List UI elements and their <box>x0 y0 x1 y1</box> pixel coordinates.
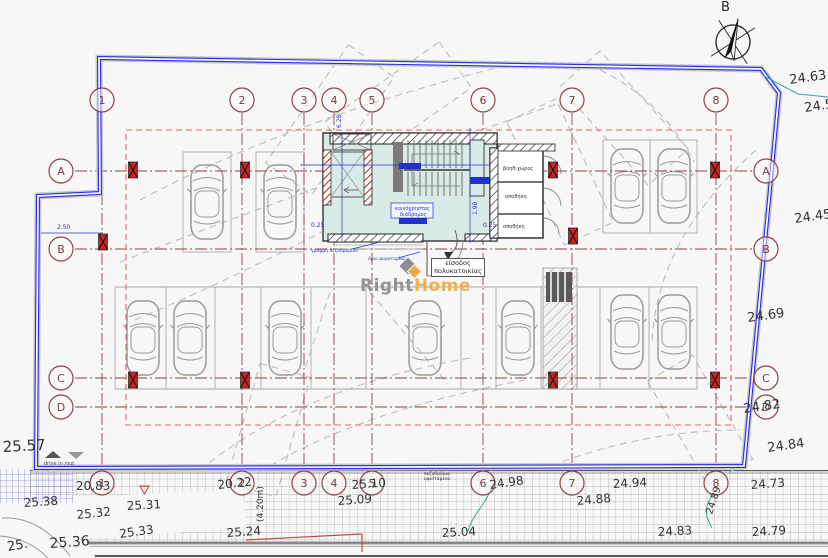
column-marker <box>129 372 138 388</box>
grid-bubble-label-C: C <box>762 372 770 385</box>
room-label: αποθήκη <box>505 193 527 200</box>
column-marker <box>711 162 720 178</box>
spot-elevation: 24.94 <box>612 475 647 491</box>
spot-elevation: 25.24 <box>226 524 261 540</box>
entrance-label-box: είσοδος πολυκατοικίας <box>431 258 485 277</box>
grid-bubble-label-D: D <box>57 401 65 414</box>
lift-wall <box>364 150 372 205</box>
column-marker <box>99 234 108 250</box>
spot-elevation: 25.09 <box>337 492 372 508</box>
column-marker <box>549 372 558 388</box>
annotation-tag: γραμμή πεζοδρομίου <box>311 247 358 254</box>
grid-bubble-label-4: 4 <box>331 94 338 107</box>
spot-elevation: 24.79 <box>751 523 786 539</box>
blue-tag <box>399 218 427 224</box>
column-marker <box>711 372 720 388</box>
column-marker <box>129 162 138 178</box>
grid-bubble-label-C: C <box>57 372 65 385</box>
sidewalk-note: υφιστάμενο <box>424 475 450 482</box>
blue-tag <box>399 163 421 169</box>
spot-elevation: 20.83 <box>76 479 110 493</box>
spot-elevation: 25.57 <box>2 436 46 456</box>
dim-sidewalk-width: (4.20m) <box>256 486 266 522</box>
grid-bubble-label-4: 4 <box>331 477 338 490</box>
spot-elevation: 25.10 <box>351 476 386 492</box>
spot-elevation: 24.83 <box>657 523 692 539</box>
grid-bubble-label-7: 7 <box>569 94 576 107</box>
grid-bubble-label-3: 3 <box>301 477 308 490</box>
grid-bubble-label-3: 3 <box>301 94 308 107</box>
spot-elevation: 24.88 <box>576 491 611 508</box>
logo-text-right: Right <box>360 276 414 296</box>
shaft-block <box>546 272 572 302</box>
grid-bubble-label-6: 6 <box>480 477 487 490</box>
grid-bubble-label-7: 7 <box>569 477 576 490</box>
grid-bubble-label-8: 8 <box>713 94 720 107</box>
column-marker <box>569 228 578 244</box>
righthome-watermark: RightHome <box>360 276 490 296</box>
corridor-label: διάδρομος <box>400 211 427 218</box>
sidewalk-note: πεζοδρόμιο <box>424 470 450 477</box>
dim-blue: 0.25 <box>311 222 325 229</box>
north-label: B <box>721 0 730 15</box>
dim-blue: 2.50 <box>57 224 71 231</box>
spot-elevation: 25.36 <box>49 533 90 552</box>
dim-blue: 0.25 <box>483 222 497 229</box>
driveway-caption: drive in /out <box>44 461 74 467</box>
spot-elevation: 24.73 <box>750 476 785 492</box>
spot-elevation: 25.38 <box>23 494 58 510</box>
grid-bubble-label-2: 2 <box>239 94 246 107</box>
column-marker <box>241 162 250 178</box>
grid-bubble-label-6: 6 <box>480 94 487 107</box>
grid-bubble-label-B: B <box>762 243 770 256</box>
grid-bubble-label-1: 1 <box>99 94 106 107</box>
boundary-elevation: 24.5 <box>803 97 828 116</box>
dim-blue: 6.28 <box>336 114 343 128</box>
lift-wall <box>323 150 331 205</box>
column-marker <box>549 162 558 178</box>
spot-elevation: 25.31 <box>126 497 161 513</box>
grid-bubble-label-B: B <box>57 243 65 256</box>
logo-text-home: Home <box>414 276 471 296</box>
floor-plan-canvas: 1122334455667788AABBCCDD 25.5720.8320.22… <box>0 0 828 558</box>
entrance-label-line2: πολυκατοικίας <box>433 268 483 276</box>
room-label: βοηθ.χώρος <box>503 165 533 172</box>
grid-bubble-label-A: A <box>57 165 65 178</box>
column-marker <box>241 372 250 388</box>
dim-blue: 1.98 <box>472 201 479 215</box>
corridor-label: κοινόχρηστος <box>395 205 430 212</box>
grid-bubble-label-A: A <box>762 165 770 178</box>
grid-bubble-label-5: 5 <box>369 94 376 107</box>
room-label: αποθήκη <box>503 223 525 230</box>
spot-elevation: 25.04 <box>441 524 476 540</box>
